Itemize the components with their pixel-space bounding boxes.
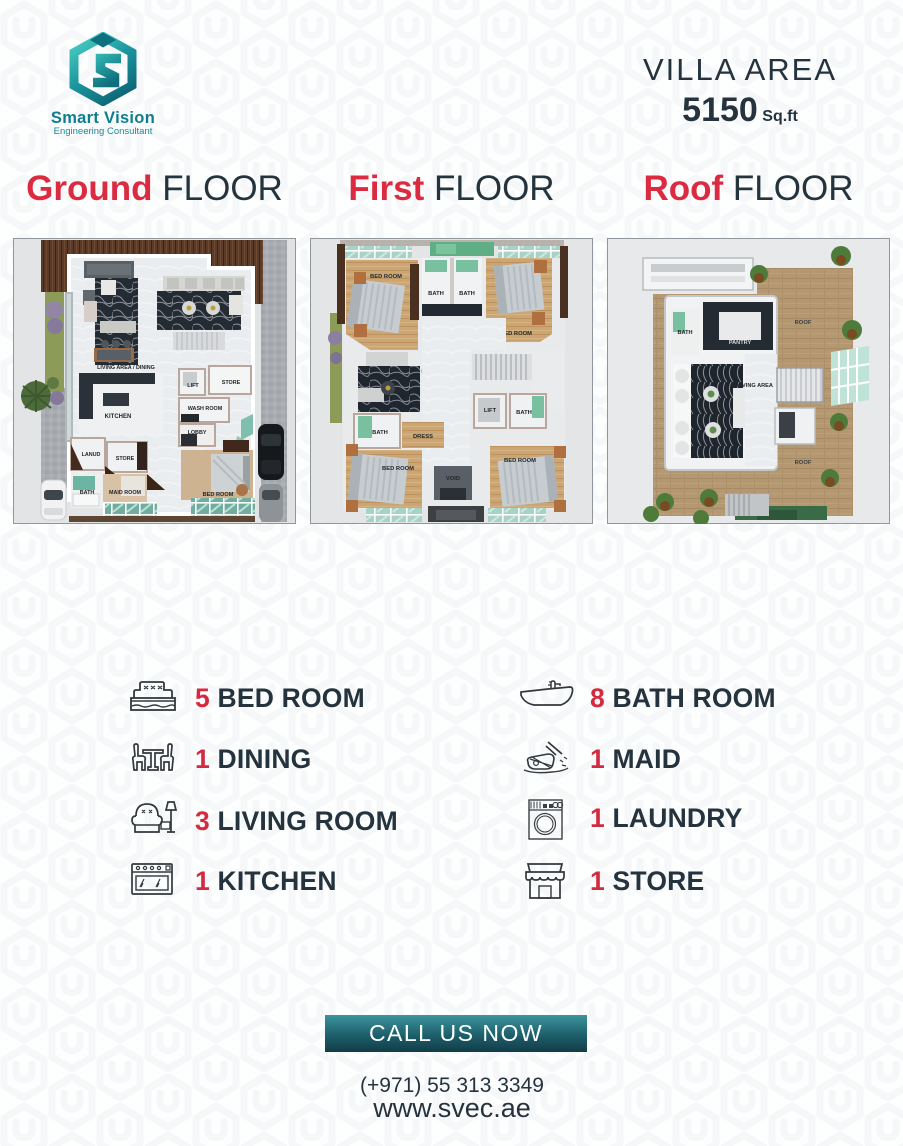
svg-text:BED ROOM: BED ROOM: [382, 466, 414, 472]
svg-text:BED ROOM: BED ROOM: [370, 274, 402, 280]
svg-text:BATH: BATH: [459, 291, 475, 297]
svg-text:STORE: STORE: [116, 456, 135, 462]
svg-text:LIVING AREA: LIVING AREA: [737, 383, 773, 389]
svg-text:KITCHEN: KITCHEN: [105, 414, 132, 420]
svg-text:BATH: BATH: [372, 430, 388, 436]
svg-text:LIFT: LIFT: [187, 383, 199, 389]
svg-text:MAID ROOM: MAID ROOM: [109, 490, 142, 496]
svg-text:ROOF: ROOF: [795, 320, 812, 326]
svg-text:BATH: BATH: [516, 410, 532, 416]
svg-text:STORE: STORE: [222, 380, 241, 386]
svg-text:LIVING AREA / DINING: LIVING AREA / DINING: [97, 365, 155, 371]
svg-text:LOBBY: LOBBY: [188, 430, 207, 436]
svg-text:BED ROOM: BED ROOM: [203, 492, 234, 498]
svg-text:ROOF: ROOF: [795, 460, 812, 466]
svg-text:LIFT: LIFT: [484, 408, 497, 414]
svg-text:VOID: VOID: [446, 476, 460, 482]
svg-text:WASH ROOM: WASH ROOM: [188, 406, 223, 412]
svg-text:DRESS: DRESS: [413, 434, 433, 440]
svg-text:LANUD: LANUD: [82, 452, 101, 458]
svg-text:BATH: BATH: [677, 330, 692, 336]
svg-text:BED ROOM: BED ROOM: [504, 458, 536, 464]
svg-text:PANTRY: PANTRY: [729, 340, 752, 346]
svg-text:BATH: BATH: [428, 291, 444, 297]
svg-text:BATH: BATH: [80, 490, 95, 496]
